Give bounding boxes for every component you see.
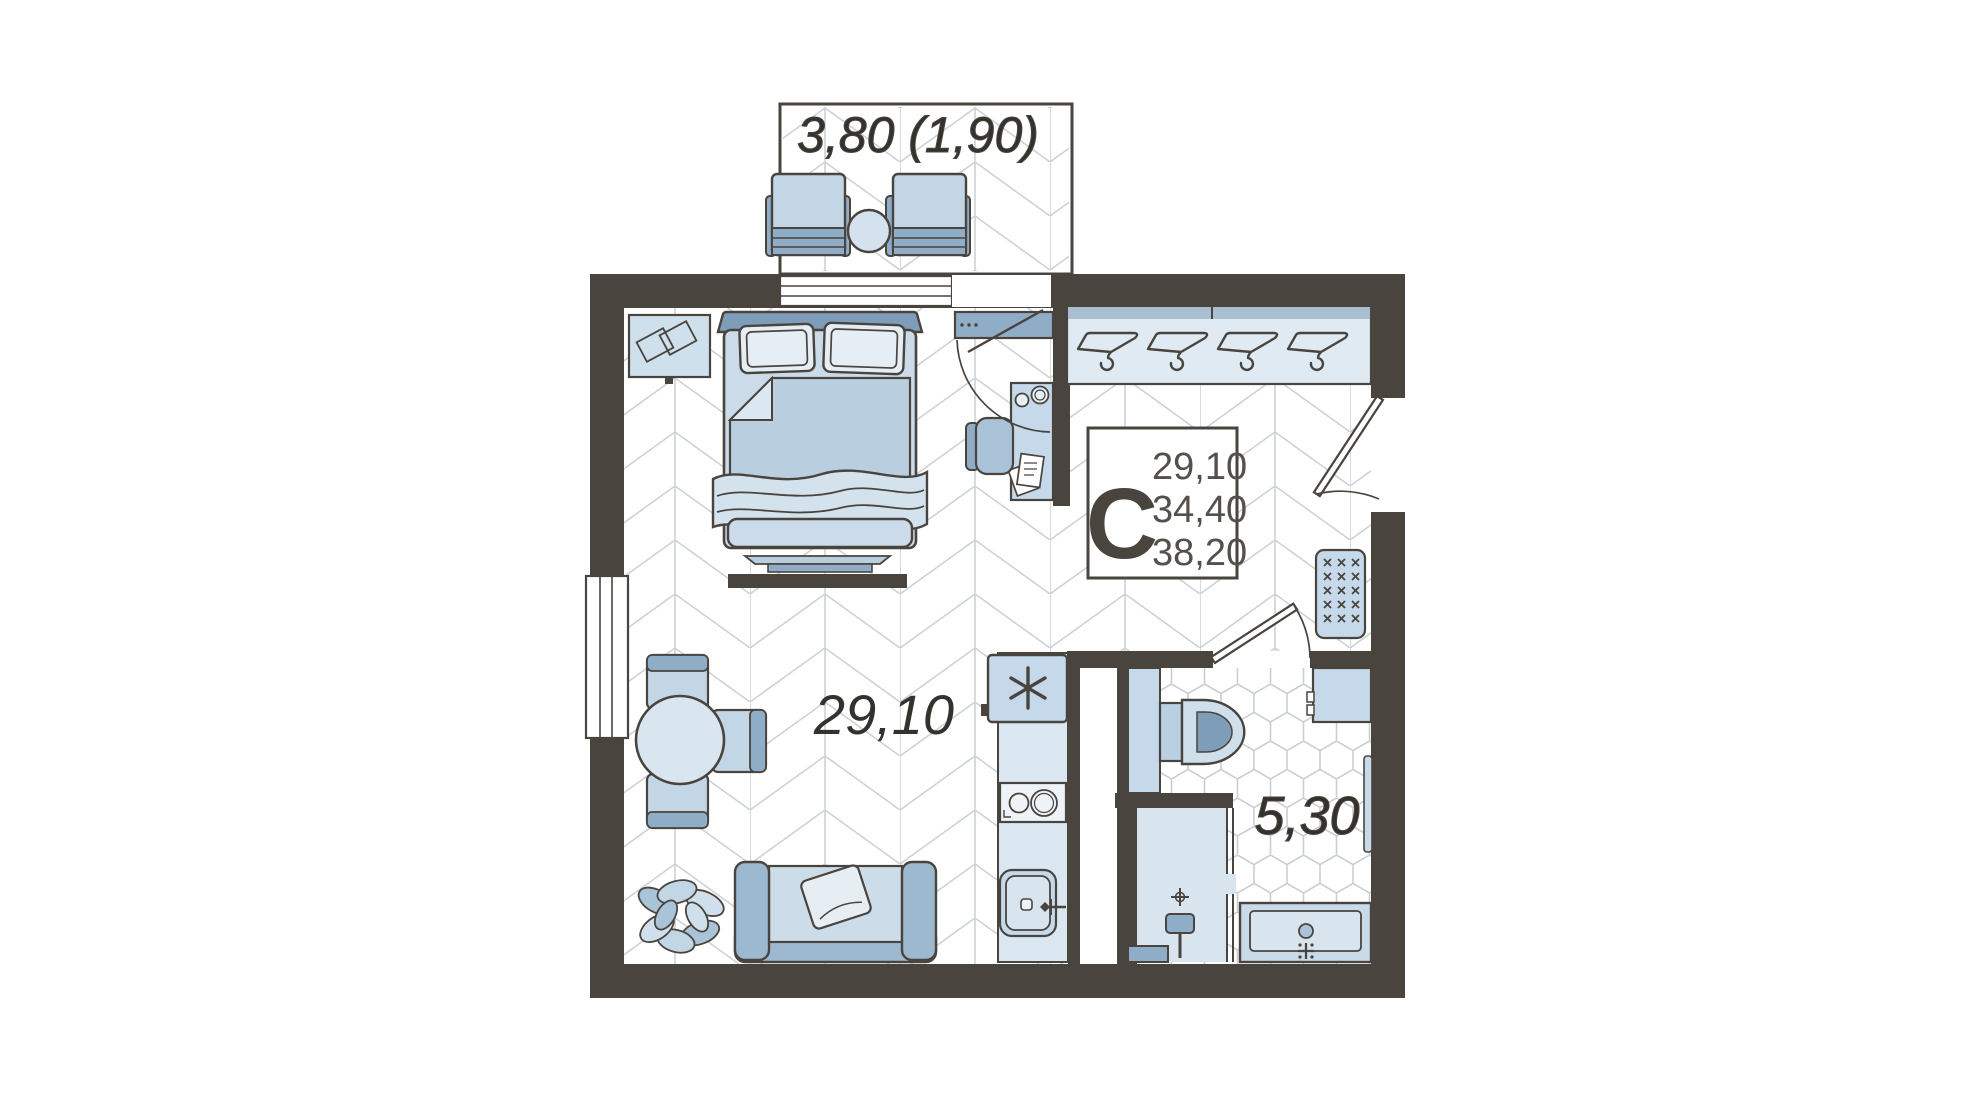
shower-step (1128, 946, 1168, 962)
floor-plan: 3,80 (1,90) (0, 0, 1980, 1099)
balcony-area-label: 3,80 (1,90) (797, 107, 1039, 163)
drain (1021, 899, 1032, 910)
living-area-value: 29,10 (1152, 446, 1247, 488)
washbasin (1307, 668, 1371, 722)
desk-cup-icon (1032, 387, 1049, 404)
armchair (886, 174, 970, 256)
wardrobe (1067, 306, 1371, 384)
bathroom-area-label: 5,30 (1254, 786, 1359, 846)
pillow (739, 324, 815, 374)
shower-glass-gap (1224, 874, 1236, 894)
kitchen-sink (1000, 870, 1066, 936)
desk-lamp-icon (1016, 394, 1029, 407)
wall-right-lower (1371, 512, 1405, 998)
dining-table (636, 696, 724, 784)
left-window (586, 576, 628, 738)
hallway-cabinet (1316, 550, 1365, 638)
pillow (823, 323, 905, 375)
room-area-label: 29,10 (813, 683, 954, 746)
wall-shower-divider (1115, 793, 1233, 808)
floor-plan-canvas: 3,80 (1,90) (0, 0, 1980, 1099)
sofa-armrest (902, 862, 936, 960)
info-box: С 29,10 34,40 38,20 (1086, 428, 1247, 580)
wardrobe-rail (1068, 307, 1370, 319)
side-table (848, 210, 890, 252)
apartment-area-value: 34,40 (1152, 489, 1247, 531)
desk-chair (966, 418, 1013, 474)
shower (1128, 808, 1236, 962)
total-area-value: 38,20 (1152, 532, 1247, 574)
media-shelf (728, 574, 907, 588)
cooktop (1000, 783, 1066, 822)
wall-kitchen-top (1067, 651, 1213, 668)
toilet (1160, 700, 1244, 764)
fridge (981, 655, 1067, 722)
wall-right-upper (1371, 274, 1405, 398)
sofa-armrest (735, 862, 769, 960)
wall-bottom (590, 964, 1405, 998)
bed (713, 312, 927, 548)
wall-bathroom-left (1117, 668, 1128, 798)
studio-type-letter: С (1086, 468, 1158, 580)
balcony-window (780, 276, 952, 306)
shower-head-icon (1166, 914, 1194, 933)
toilet-panel (1128, 668, 1160, 793)
desk (1008, 383, 1053, 500)
bathtub (1240, 903, 1371, 962)
tv-panel (629, 315, 710, 384)
wall-bathroom-top-right (1310, 651, 1371, 668)
faucet-cross-icon (1298, 943, 1314, 959)
bed-foot (728, 519, 912, 547)
toilet-tank (1160, 703, 1182, 761)
balcony-door-opening (952, 275, 1051, 307)
shaft (1080, 668, 1117, 964)
balcony: 3,80 (1,90) (766, 104, 1072, 274)
wall-shower-left (1117, 808, 1137, 964)
armchair (766, 174, 850, 256)
entrance-opening (1371, 398, 1405, 512)
towel-rail (1364, 756, 1372, 852)
sofa (735, 862, 936, 962)
fridge-handle (981, 704, 988, 716)
drain (1299, 924, 1313, 938)
wall-kitchen-right (1068, 668, 1080, 964)
